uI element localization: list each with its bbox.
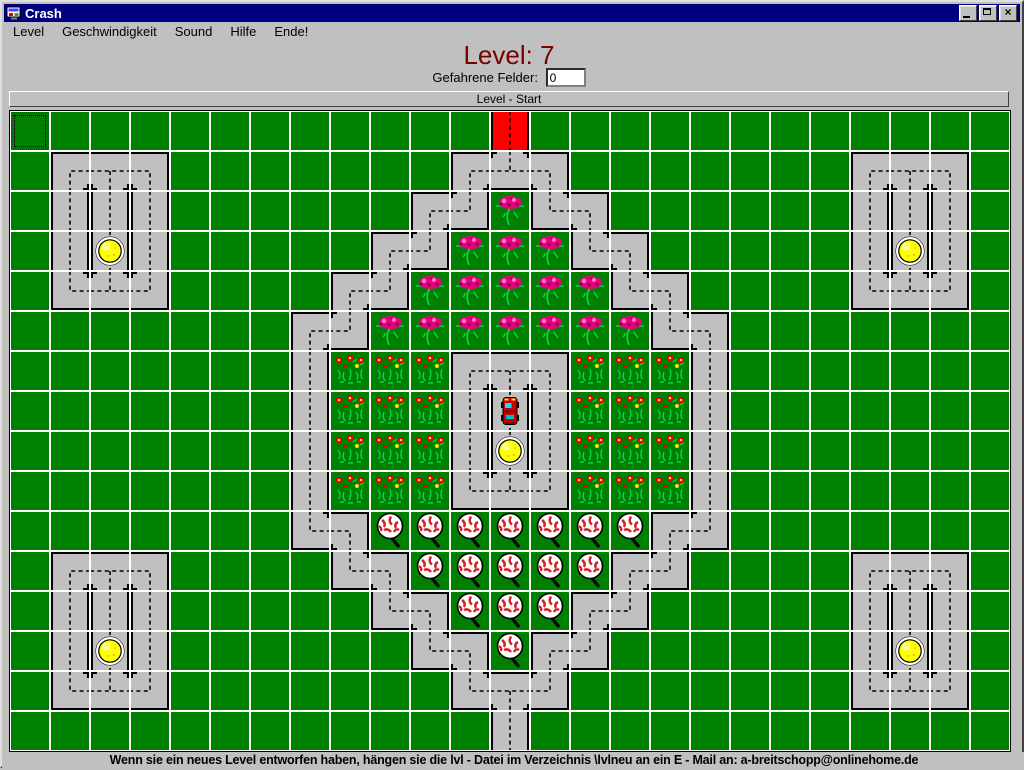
grass-cell [131,512,169,550]
road-vertical-cell [291,472,329,510]
grass-cell [371,112,409,150]
road-tee-south-cell [491,352,529,390]
rose-cell [531,232,569,270]
grass-cell [291,672,329,710]
grass-cell [211,512,249,550]
grass-cell [651,232,689,270]
road-vertical-cell [851,192,889,230]
road-vertical-cell [291,352,329,390]
tree-cell [411,512,449,550]
road-tee-south-cell [491,672,529,710]
road-corner-ne-cell [291,512,329,550]
grass-cell [731,432,769,470]
road-vertical-cell [51,192,89,230]
road-corner-se-cell [331,272,369,310]
grass-cell [331,152,369,190]
grass-cell [811,192,849,230]
grass-cell [891,392,929,430]
grass-cell [651,152,689,190]
grass-cell [171,472,209,510]
road-vertical-cell [91,632,129,670]
road-corner-se-cell [291,312,329,350]
grass-cell [931,392,969,430]
road-corner-se-cell [611,552,649,590]
grass-cell [171,232,209,270]
grass-cell [971,152,1009,190]
road-tee-north-cell [891,672,929,710]
grass-cell [771,472,809,510]
grass-cell [331,672,369,710]
road-vertical-cell [931,232,969,270]
road-vertical-cell [691,472,729,510]
road-corner-nw-cell [651,552,689,590]
grass-cell [451,712,489,750]
grass-cell [11,432,49,470]
grass-cell [851,472,889,510]
grass-cell [11,152,49,190]
grass-cell [291,152,329,190]
road-corner-ne-cell [851,272,889,310]
road-corner-nw-cell [531,672,569,710]
grass-cell [731,272,769,310]
grass-cell [851,112,889,150]
grass-cell [291,192,329,230]
grass-cell [771,152,809,190]
grass-cell [171,392,209,430]
grass-cell [691,592,729,630]
grass-cell [531,112,569,150]
tree-cell [411,552,449,590]
grass-cell [811,392,849,430]
grass-cell [291,592,329,630]
grass-cell [51,512,89,550]
grass-cell [171,712,209,750]
flowerpatch-cell [611,472,649,510]
grass-cell [851,432,889,470]
grass-cell [251,592,289,630]
tree-cell [451,592,489,630]
grass-cell [171,312,209,350]
grass-cell [211,352,249,390]
grass-cell [251,232,289,270]
grass-cell [91,392,129,430]
app-icon [6,5,22,21]
road-tee-north-cell [491,472,529,510]
flowerpatch-cell [571,432,609,470]
grass-cell [251,112,289,150]
grass-cell [331,592,369,630]
grass-cell [931,312,969,350]
grass-cell [731,312,769,350]
grass-cell [691,272,729,310]
grass-cell [691,112,729,150]
grass-cell [931,712,969,750]
road-corner-nw-cell [131,272,169,310]
road-vertical-cell [851,592,889,630]
grass-cell [851,712,889,750]
flowerpatch-cell [611,432,649,470]
grass-cell [131,392,169,430]
road-corner-sw-cell [451,632,489,670]
grass-cell [811,112,849,150]
tree-cell [491,552,529,590]
grass-cell [651,192,689,230]
road-vertical-cell [51,232,89,270]
grass-cell [291,272,329,310]
flowerpatch-cell [571,352,609,390]
grass-cell [171,552,209,590]
level-title: Level: 7 [2,40,1016,71]
road-corner-sw-cell [531,152,569,190]
grass-cell [971,432,1009,470]
grass-cell [91,312,129,350]
tree-cell [531,512,569,550]
grass-cell [611,712,649,750]
road-corner-se-cell [371,232,409,270]
grass-cell [571,152,609,190]
grass-cell [731,232,769,270]
grass-cell [611,672,649,710]
grass-cell [891,312,929,350]
close-button[interactable]: × [999,5,1017,21]
road-corner-se-cell [851,552,889,590]
flowerpatch-cell [331,432,369,470]
grass-cell [971,192,1009,230]
flowerpatch-cell [651,392,689,430]
grass-cell [931,472,969,510]
title-bar: Crash × [4,4,1020,22]
road-vertical-cell [91,592,129,630]
grass-cell [211,712,249,750]
grass-cell [971,112,1009,150]
rose-cell [491,312,529,350]
road-vertical-cell [491,432,529,470]
grass-cell [891,472,929,510]
grass-cell [251,472,289,510]
road-corner-ne-cell [51,272,89,310]
grass-cell [211,632,249,670]
grass-cell [731,352,769,390]
tree-cell [571,512,609,550]
menu-item-level[interactable]: Level [4,23,53,40]
menu-item-ende[interactable]: Ende! [265,23,317,40]
road-corner-se-cell [451,352,489,390]
tree-cell [531,592,569,630]
road-corner-ne-cell [451,472,489,510]
grass-cell [931,512,969,550]
grass-cell [11,192,49,230]
road-vertical-cell [891,192,929,230]
grass-cell [411,712,449,750]
grass-cell [291,712,329,750]
road-corner-ne-cell [531,192,569,230]
road-tee-south-cell [891,552,929,590]
grass-cell [651,712,689,750]
grass-cell [891,512,929,550]
tree-cell [451,552,489,590]
flowerpatch-cell [651,472,689,510]
minimize-button[interactable] [959,5,977,21]
grass-cell [931,352,969,390]
grass-cell [371,672,409,710]
road-corner-nw-cell [611,592,649,630]
tree-cell [451,512,489,550]
grass-cell [211,232,249,270]
flowerpatch-cell [611,352,649,390]
grass-cell [211,112,249,150]
grass-cell [11,232,49,270]
road-corner-ne-cell [51,672,89,710]
rose-cell [571,312,609,350]
road-vertical-cell [131,232,169,270]
road-vertical-cell [491,712,529,750]
grass-cell [51,472,89,510]
grass-cell [91,512,129,550]
board-header: Level - Start [9,91,1009,107]
road-corner-nw-cell [331,312,369,350]
grass-cell [11,392,49,430]
flowerpatch-cell [571,392,609,430]
grass-cell [811,552,849,590]
maximize-button[interactable] [979,5,997,21]
road-corner-sw-cell [931,552,969,590]
road-corner-sw-cell [571,192,609,230]
road-corner-sw-cell [651,272,689,310]
grass-cell [771,312,809,350]
grass-cell [211,672,249,710]
grass-cell [331,712,369,750]
grass-cell [211,152,249,190]
grass-cell [51,392,89,430]
road-corner-se-cell [651,512,689,550]
grass-cell [771,712,809,750]
grass-cell [971,312,1009,350]
grass-cell [211,392,249,430]
grass-cell [571,712,609,750]
road-vertical-cell [51,632,89,670]
flowerpatch-cell [411,472,449,510]
grass-cell [131,472,169,510]
road-corner-se-cell [51,552,89,590]
grass-cell [131,112,169,150]
grass-cell [11,272,49,310]
flowerpatch-cell [611,392,649,430]
tree-cell [531,552,569,590]
grass-cell [211,312,249,350]
grass-cell [811,512,849,550]
grass-cell [731,192,769,230]
grass-cell [611,192,649,230]
status-bar: Wenn sie ein neues Level entworfen haben… [2,752,1024,770]
road-vertical-cell [51,592,89,630]
grass-cell [891,112,929,150]
grass-cell [51,112,89,150]
road-tee-south-cell [891,152,929,190]
grass-cell [891,432,929,470]
flowerpatch-cell [651,432,689,470]
grass-cell [771,112,809,150]
grass-cell [611,632,649,670]
flowerpatch-cell [371,352,409,390]
flowerpatch-cell [411,352,449,390]
grass-cell [971,712,1009,750]
grass-cell [691,232,729,270]
driven-fields-input[interactable] [546,68,586,87]
grass-cell [251,352,289,390]
grass-cell [651,672,689,710]
grass-cell [971,672,1009,710]
grass-cell [11,472,49,510]
grass-cell [771,272,809,310]
flowerpatch-cell [371,472,409,510]
grass-cell [691,192,729,230]
road-corner-se-cell [51,152,89,190]
driven-fields-label: Gefahrene Felder: [432,70,538,85]
grass-cell [411,672,449,710]
minimize-icon [963,16,970,18]
rose-cell [491,232,529,270]
grass-cell [211,192,249,230]
close-icon: × [1000,5,1016,19]
grass-cell [11,552,49,590]
grass-cell [771,512,809,550]
road-corner-sw-cell [131,152,169,190]
menu-item-geschwindigkeit[interactable]: Geschwindigkeit [53,23,166,40]
grass-cell [131,712,169,750]
grass-cell [211,272,249,310]
grass-cell [131,312,169,350]
road-vertical-cell [131,192,169,230]
grass-cell [211,592,249,630]
road-corner-nw-cell [931,272,969,310]
grass-cell [851,392,889,430]
grass-cell [291,552,329,590]
grass-cell [611,112,649,150]
grass-cell [691,552,729,590]
grass-cell [771,552,809,590]
road-corner-nw-cell [571,632,609,670]
road-vertical-cell [491,392,529,430]
grass-cell [251,512,289,550]
road-tee-south-cell [91,552,129,590]
rose-cell [531,312,569,350]
flowerpatch-cell [331,472,369,510]
grass-cell [331,632,369,670]
grass-cell [171,192,209,230]
grass-cell [731,152,769,190]
grass-cell [651,592,689,630]
grass-cell [171,512,209,550]
window-buttons: × [959,5,1020,21]
tree-cell [491,592,529,630]
grass-cell [971,552,1009,590]
rose-cell [451,272,489,310]
grass-cell [811,312,849,350]
grass-cell [51,432,89,470]
grass-cell [731,552,769,590]
grass-cell [291,232,329,270]
grass-cell [731,672,769,710]
grass-cell [11,672,49,710]
grass-cell [171,592,209,630]
road-corner-sw-cell [531,352,569,390]
road-corner-se-cell [411,192,449,230]
board-grid[interactable] [9,110,1011,752]
flowerpatch-cell [571,472,609,510]
grass-cell [91,432,129,470]
grass-cell [331,232,369,270]
road-vertical-cell [531,432,569,470]
road-corner-nw-cell [131,672,169,710]
flowerpatch-cell [411,432,449,470]
road-corner-nw-cell [531,472,569,510]
road-vertical-cell [291,392,329,430]
rose-cell [371,312,409,350]
grass-cell [131,352,169,390]
road-corner-ne-cell [611,272,649,310]
grass-cell [651,632,689,670]
road-tee-north-cell [491,152,529,190]
road-vertical-cell [931,192,969,230]
grass-cell [691,632,729,670]
road-vertical-cell [91,192,129,230]
road-vertical-cell [891,592,929,630]
rose-cell [571,272,609,310]
grass-cell [771,672,809,710]
tree-cell [491,512,529,550]
grass-cell [11,632,49,670]
grass-cell [171,152,209,190]
road-corner-ne-cell [851,672,889,710]
grass-cell [371,192,409,230]
menu-item-hilfe[interactable]: Hilfe [221,23,265,40]
grass-cell [771,392,809,430]
flowerpatch-cell [331,392,369,430]
grass-cell [851,512,889,550]
tree-cell [571,552,609,590]
road-corner-sw-cell [611,232,649,270]
grass-cell [731,592,769,630]
road-corner-nw-cell [451,192,489,230]
grass-cell [651,112,689,150]
grass-cell [371,632,409,670]
grass-cell [331,192,369,230]
road-corner-ne-cell [371,592,409,630]
menu-item-sound[interactable]: Sound [166,23,222,40]
road-corner-ne-cell [451,672,489,710]
road-vertical-cell [291,432,329,470]
grass-cell [211,432,249,470]
grass-cell [971,472,1009,510]
road-vertical-cell [851,632,889,670]
grass-cell [931,112,969,150]
grass-cell [731,512,769,550]
grass-cell [971,392,1009,430]
grass-cell [851,312,889,350]
grass-cell [251,712,289,750]
grass-cell [11,312,49,350]
grass-cell [571,672,609,710]
flowerpatch-cell [651,352,689,390]
grass-cell [251,672,289,710]
tree-cell [491,632,529,670]
grass-cell [371,712,409,750]
rose-cell [411,272,449,310]
road-corner-nw-cell [691,512,729,550]
grass-cell [291,112,329,150]
grass-cell [691,672,729,710]
road-vertical-cell [451,432,489,470]
